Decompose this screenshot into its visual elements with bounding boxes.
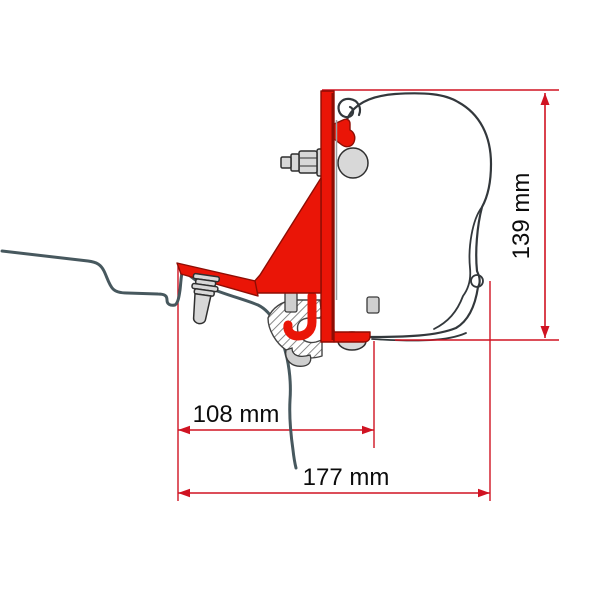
dimension-label-height: 139 mm (508, 173, 535, 260)
spacer-tab-left (285, 292, 297, 312)
awning-case-body (336, 93, 491, 337)
bracket-bottom-foot (334, 330, 370, 342)
mounting-knob-screw (187, 273, 220, 325)
roller-disc (338, 148, 368, 178)
bolt-washer-outer (291, 154, 299, 171)
bolt-cap (281, 157, 291, 168)
arrow-left-icon (178, 426, 190, 434)
awning-case (336, 93, 491, 340)
arrow-right-icon (478, 489, 490, 497)
arrow-right-icon (362, 426, 374, 434)
diagram-canvas: 139 mm 108 mm 177 mm (0, 0, 600, 600)
bracket-dimension-diagram: 139 mm 108 mm 177 mm (0, 0, 600, 600)
bolt-hex-nut (299, 151, 317, 173)
dimension-label-bracket-depth: 108 mm (193, 401, 280, 428)
hex-bolt (281, 149, 324, 176)
dimension-label-overall-depth: 177 mm (303, 464, 390, 491)
arrow-left-icon (178, 489, 190, 497)
arrow-down-icon (541, 326, 550, 338)
bracket-gusset-triangle (252, 178, 321, 293)
screw-knob-body (191, 294, 211, 325)
spacer-tab-right (367, 297, 379, 313)
arrow-up-icon (541, 93, 550, 105)
